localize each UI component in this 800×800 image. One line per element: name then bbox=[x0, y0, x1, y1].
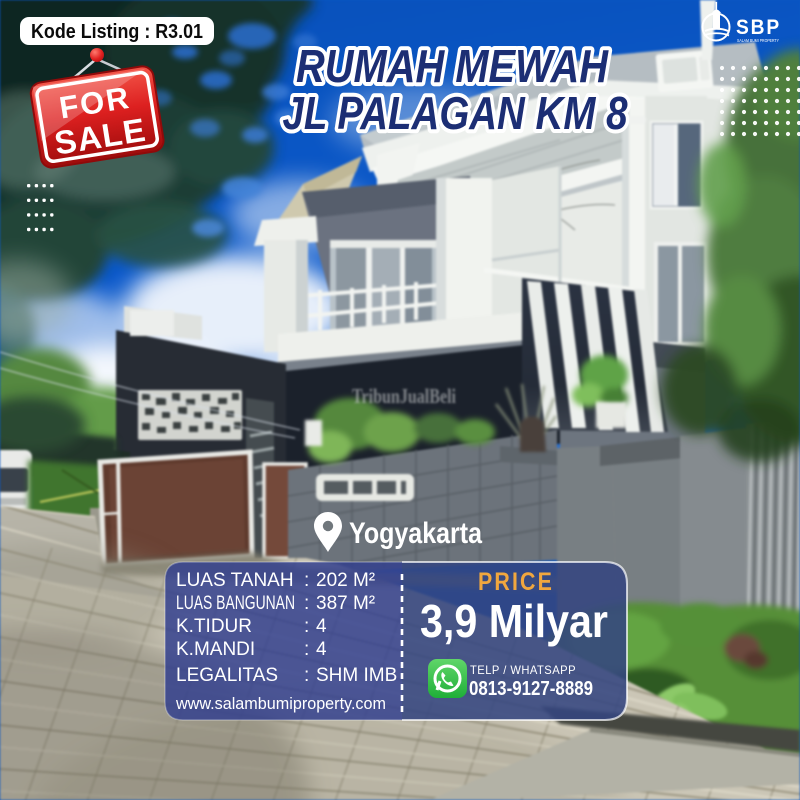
svg-text:JL PALAGAN KM 8: JL PALAGAN KM 8 bbox=[283, 87, 628, 139]
svg-text::: : bbox=[304, 639, 309, 660]
svg-text:Yogyakarta: Yogyakarta bbox=[349, 517, 482, 550]
svg-text:LEGALITAS: LEGALITAS bbox=[176, 665, 278, 686]
svg-text:TELP / WHATSAPP: TELP / WHATSAPP bbox=[470, 663, 576, 677]
svg-text:www.salambumiproperty.com: www.salambumiproperty.com bbox=[175, 694, 386, 713]
svg-text:LUAS BANGUNAN: LUAS BANGUNAN bbox=[176, 593, 295, 614]
svg-text:Kode Listing : R3.01: Kode Listing : R3.01 bbox=[31, 21, 203, 43]
svg-text:4: 4 bbox=[316, 639, 327, 660]
svg-text:387 M²: 387 M² bbox=[316, 593, 375, 614]
svg-text::: : bbox=[304, 593, 309, 614]
svg-text:202 M²: 202 M² bbox=[316, 570, 375, 591]
svg-text::: : bbox=[304, 665, 309, 686]
svg-text:SHM IMB: SHM IMB bbox=[316, 665, 397, 686]
svg-text:K.MANDI: K.MANDI bbox=[176, 639, 255, 660]
svg-text:K.TIDUR: K.TIDUR bbox=[176, 616, 252, 637]
svg-text::: : bbox=[304, 570, 309, 591]
svg-text:SBP: SBP bbox=[736, 16, 781, 39]
svg-text:PRICE: PRICE bbox=[478, 568, 554, 596]
svg-text:4: 4 bbox=[316, 616, 327, 637]
svg-text::: : bbox=[304, 616, 309, 637]
svg-text:SALAM BUMI PROPERTY: SALAM BUMI PROPERTY bbox=[737, 38, 779, 43]
svg-text:0813-9127-8889: 0813-9127-8889 bbox=[469, 678, 593, 700]
svg-text:3,9 Milyar: 3,9 Milyar bbox=[420, 595, 608, 647]
svg-text:RUMAH MEWAH: RUMAH MEWAH bbox=[296, 40, 609, 92]
svg-text:LUAS TANAH: LUAS TANAH bbox=[176, 570, 294, 591]
